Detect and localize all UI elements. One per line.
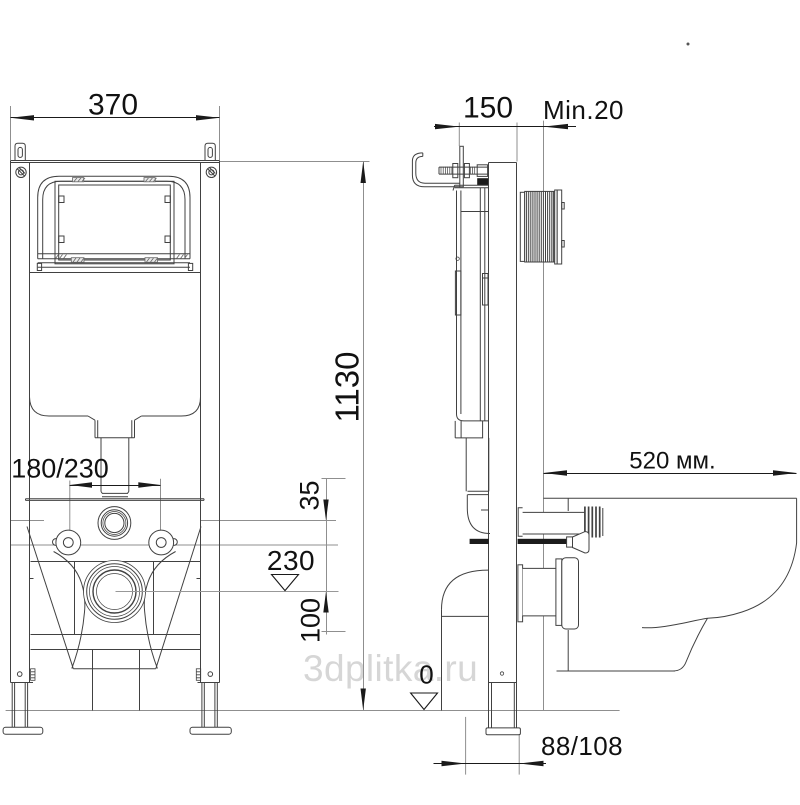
svg-text:370: 370 (88, 89, 138, 122)
svg-text:150: 150 (463, 92, 513, 125)
svg-text:35: 35 (295, 480, 325, 510)
svg-text:3dplitka.ru: 3dplitka.ru (303, 648, 478, 689)
svg-text:230: 230 (267, 545, 315, 576)
svg-text:180/230: 180/230 (11, 454, 109, 484)
svg-text:520 мм.: 520 мм. (629, 448, 715, 475)
svg-text:0: 0 (419, 660, 433, 690)
svg-text:Min.20: Min.20 (543, 95, 624, 125)
svg-text:100: 100 (296, 598, 326, 643)
svg-text:1130: 1130 (329, 352, 366, 423)
svg-text:88/108: 88/108 (541, 731, 623, 761)
